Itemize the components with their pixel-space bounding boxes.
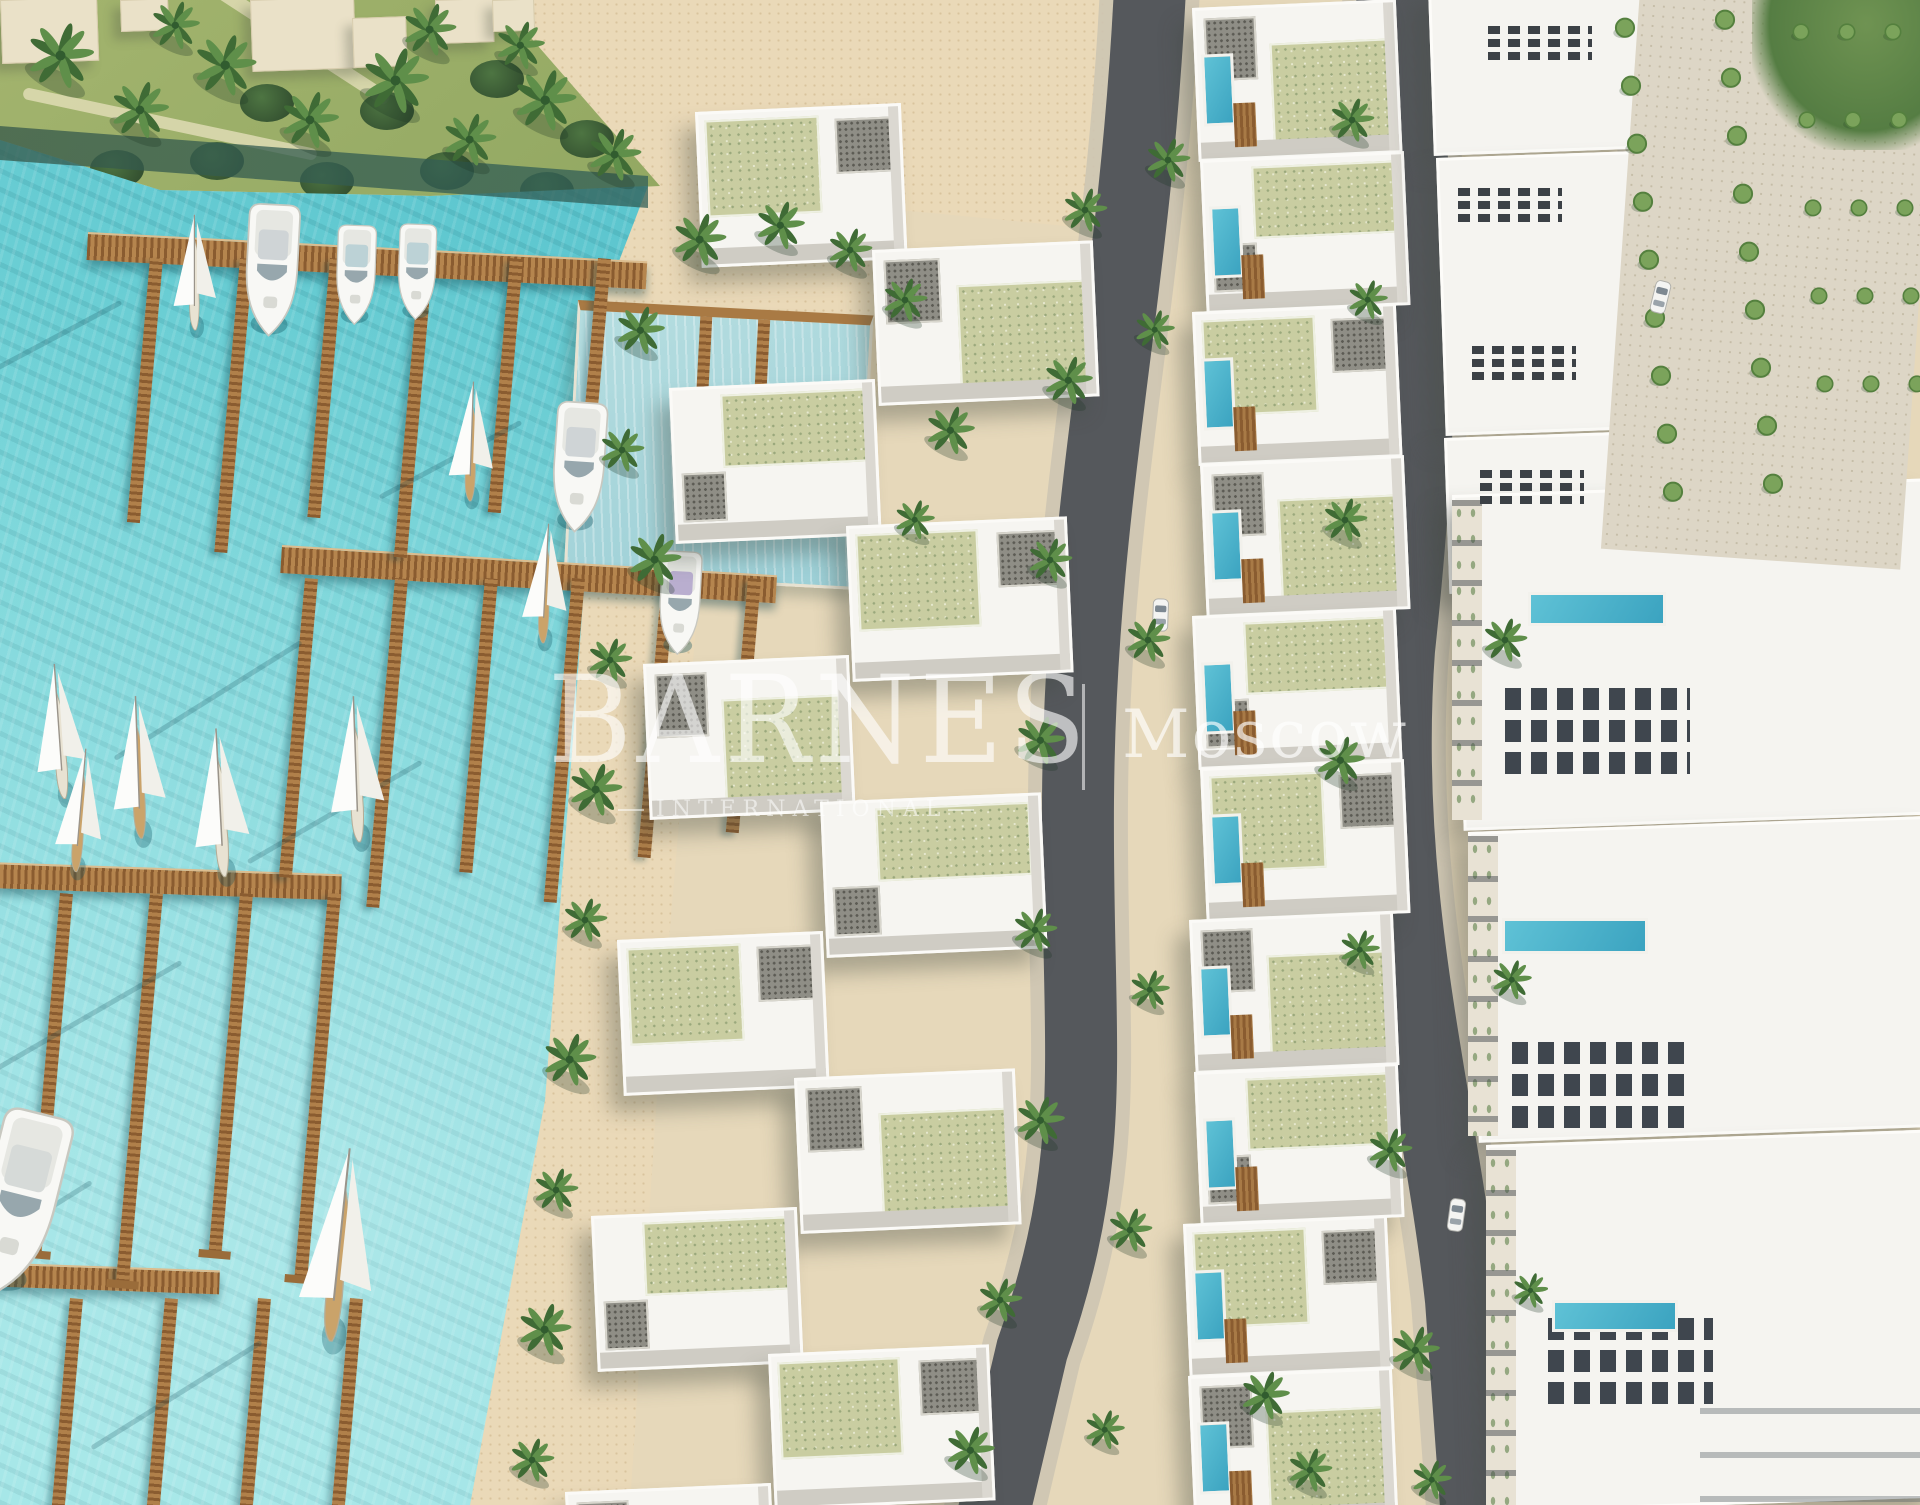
rooftop-pool <box>1528 592 1666 626</box>
villa-plunge-pool <box>1197 1422 1232 1494</box>
palm-tree <box>1027 537 1073 583</box>
palm-tree <box>672 212 727 267</box>
villa-block <box>669 379 882 544</box>
palm-tree <box>280 90 340 150</box>
villa-east-wall <box>1391 762 1407 910</box>
villa-deck <box>1241 862 1265 907</box>
villa-block <box>617 931 830 1096</box>
villa-deck <box>1233 102 1257 147</box>
rooftop-vent-array <box>1488 39 1592 47</box>
street-tree <box>1900 286 1920 308</box>
villa-plunge-pool <box>1209 510 1244 582</box>
rooftop-vent-array <box>1480 470 1584 478</box>
street-tree <box>1724 124 1750 150</box>
villa-deck <box>1233 406 1257 451</box>
villa-roof-garden <box>1243 617 1389 695</box>
facade-window-grid <box>1512 1106 1687 1128</box>
street-tree <box>1848 198 1870 220</box>
rooftop-vent-array <box>1472 372 1576 380</box>
street-tree <box>1796 110 1818 132</box>
street-tree <box>1748 356 1774 382</box>
roof-gravel-patch <box>682 472 728 523</box>
street-tree <box>1730 182 1756 208</box>
roof-gravel-patch <box>834 116 892 173</box>
palm-tree <box>1062 187 1108 233</box>
villa-plunge-pool <box>1201 358 1236 430</box>
palm-tree <box>1339 929 1380 970</box>
palm-tree <box>1043 355 1094 406</box>
villa-deck <box>1229 1470 1253 1505</box>
facade-window-grid <box>1512 1074 1687 1096</box>
street-tree <box>1814 374 1836 396</box>
villa-block <box>1200 455 1411 618</box>
street-tree <box>1630 190 1656 216</box>
villa-deck <box>1241 558 1265 603</box>
palm-tree <box>977 1277 1023 1323</box>
rooftop-vent-array <box>1488 26 1592 34</box>
palm-tree <box>495 20 546 71</box>
street-tree <box>1894 198 1916 220</box>
palm-tree <box>827 227 873 273</box>
street-tree <box>1906 374 1920 396</box>
villa-roof-garden <box>642 1216 789 1295</box>
villa-roof-garden <box>626 944 744 1046</box>
roof-gravel-patch <box>576 1500 631 1505</box>
palm-tree <box>894 499 935 540</box>
palm-tree <box>1390 1325 1441 1376</box>
rooftop-vent-array <box>1472 359 1576 367</box>
roof-gravel-patch <box>1321 1229 1379 1286</box>
apartment-facade <box>1486 1150 1516 1505</box>
street-tree <box>1808 286 1830 308</box>
rooftop-vent-array <box>1458 201 1562 209</box>
palm-tree <box>542 1032 597 1087</box>
watermark-divider <box>1082 684 1085 790</box>
palm-tree <box>627 532 682 587</box>
street-tree <box>1854 286 1876 308</box>
villa-deck <box>1241 254 1265 299</box>
palm-tree <box>1015 1095 1066 1146</box>
palm-tree <box>599 427 645 473</box>
villa-plunge-pool <box>1209 206 1244 278</box>
facade-window-grid <box>1505 720 1690 742</box>
street-tree <box>1836 22 1858 44</box>
villa-block <box>1192 303 1403 466</box>
villa-roof-garden <box>855 529 981 631</box>
facade-window-grid <box>1505 752 1690 774</box>
street-tree <box>1790 22 1812 44</box>
aerial-render-image: BARNES Moscow INTERNATIONAL <box>0 0 1920 1505</box>
street-tree <box>1648 364 1674 390</box>
villa-deck <box>1235 1166 1259 1211</box>
roof-gravel-patch <box>604 1300 650 1351</box>
palm-tree <box>1134 309 1175 350</box>
villa-east-wall <box>1374 1218 1390 1366</box>
street-tree <box>1842 110 1864 132</box>
rooftop-vent-array <box>1472 346 1576 354</box>
palm-tree <box>882 277 928 323</box>
villa-block <box>794 1068 1022 1233</box>
villa-block <box>1183 1215 1394 1378</box>
palm-tree <box>945 1425 996 1476</box>
rooftop-vent-array <box>1480 496 1584 504</box>
palm-tree <box>1491 959 1532 1000</box>
rooftop-pool <box>1502 918 1648 954</box>
roof-gravel-patch <box>919 1358 981 1416</box>
street-tree <box>1660 480 1686 506</box>
palm-tree <box>517 1302 572 1357</box>
watermark-city-text: Moscow <box>1122 702 1408 768</box>
villa-south-wall <box>777 1481 992 1505</box>
villa-roof-garden <box>1251 161 1397 239</box>
villa-plunge-pool <box>1203 1118 1238 1190</box>
rooftop-vent-array <box>1458 188 1562 196</box>
villa-block <box>591 1207 804 1372</box>
villa-deck <box>1224 1318 1248 1363</box>
palm-tree <box>925 405 976 456</box>
palm-tree <box>562 897 608 943</box>
watermark-rule-left <box>618 809 644 811</box>
street-tree <box>1882 22 1904 44</box>
villa-deck <box>1230 1014 1254 1059</box>
street-tree <box>1624 132 1650 158</box>
apartment-facade <box>1452 500 1482 820</box>
villa-roof-garden <box>879 1108 1012 1223</box>
street-tree <box>1654 422 1680 448</box>
street-tree <box>1754 414 1780 440</box>
palm-tree <box>615 305 666 356</box>
palm-tree <box>1287 1447 1333 1493</box>
palm-tree <box>150 0 201 50</box>
palm-tree <box>1322 497 1368 543</box>
villa-plunge-pool <box>1201 54 1236 126</box>
rooftop-pool <box>1552 1300 1678 1332</box>
facade-window-grid <box>1505 688 1690 710</box>
palm-tree <box>1411 1459 1452 1500</box>
rooftop-vent-array <box>1488 52 1592 60</box>
street-tree <box>1888 110 1910 132</box>
street-tree <box>1712 8 1738 34</box>
facade-window-grid <box>1548 1382 1713 1404</box>
street-tree <box>1718 66 1744 92</box>
palm-tree <box>1145 137 1191 183</box>
villa-roof-garden <box>720 388 867 467</box>
roof-gravel-patch <box>833 885 882 936</box>
palm-tree <box>1125 617 1171 663</box>
street-tree <box>1802 198 1824 220</box>
palm-tree <box>513 68 577 132</box>
villa-roof-garden <box>777 1357 903 1459</box>
street-tree <box>1636 248 1662 274</box>
palm-tree <box>1240 1370 1291 1421</box>
palm-tree <box>755 200 806 251</box>
street-tree <box>1860 374 1882 396</box>
watermark-brand-text: BARNES <box>548 660 1091 781</box>
rooftop-vent-array <box>1480 483 1584 491</box>
palm-tree <box>1107 1207 1153 1253</box>
palm-tree <box>1347 279 1388 320</box>
villa-block <box>1200 759 1411 922</box>
facade-window-grid <box>1512 1042 1687 1064</box>
palm-tree <box>1329 97 1375 143</box>
palm-tree <box>193 33 257 97</box>
villa-plunge-pool <box>1209 814 1244 886</box>
villa-plunge-pool <box>1192 1270 1227 1342</box>
apartment-balconies <box>1700 1398 1920 1502</box>
street-tree <box>1742 298 1768 324</box>
palm-tree <box>1084 1409 1125 1450</box>
palm-tree <box>442 112 497 167</box>
palm-tree <box>1129 969 1170 1010</box>
street-tree <box>1736 240 1762 266</box>
palm-tree <box>1367 1127 1413 1173</box>
street-tree <box>1760 472 1786 498</box>
facade-window-grid <box>1548 1350 1713 1372</box>
palm-tree <box>402 2 457 57</box>
palm-tree <box>1482 617 1528 663</box>
rooftop-vent-array <box>1458 214 1562 222</box>
palm-tree <box>1512 1272 1549 1309</box>
villa-plunge-pool <box>1198 966 1233 1038</box>
villa-east-wall <box>1383 306 1399 454</box>
street-tree <box>1618 74 1644 100</box>
palm-tree <box>1012 907 1058 953</box>
palm-tree <box>110 80 170 140</box>
palm-tree <box>26 21 95 90</box>
palm-tree <box>533 1167 579 1213</box>
watermark-rule-right <box>948 809 974 811</box>
villa-east-wall <box>1391 154 1407 302</box>
watermark-subtitle-text: INTERNATIONAL <box>656 799 947 821</box>
roof-gravel-patch <box>805 1086 863 1152</box>
palm-tree <box>587 127 642 182</box>
palm-tree <box>509 1437 555 1483</box>
roof-gravel-patch <box>756 944 814 1001</box>
street-tree <box>1612 16 1638 42</box>
